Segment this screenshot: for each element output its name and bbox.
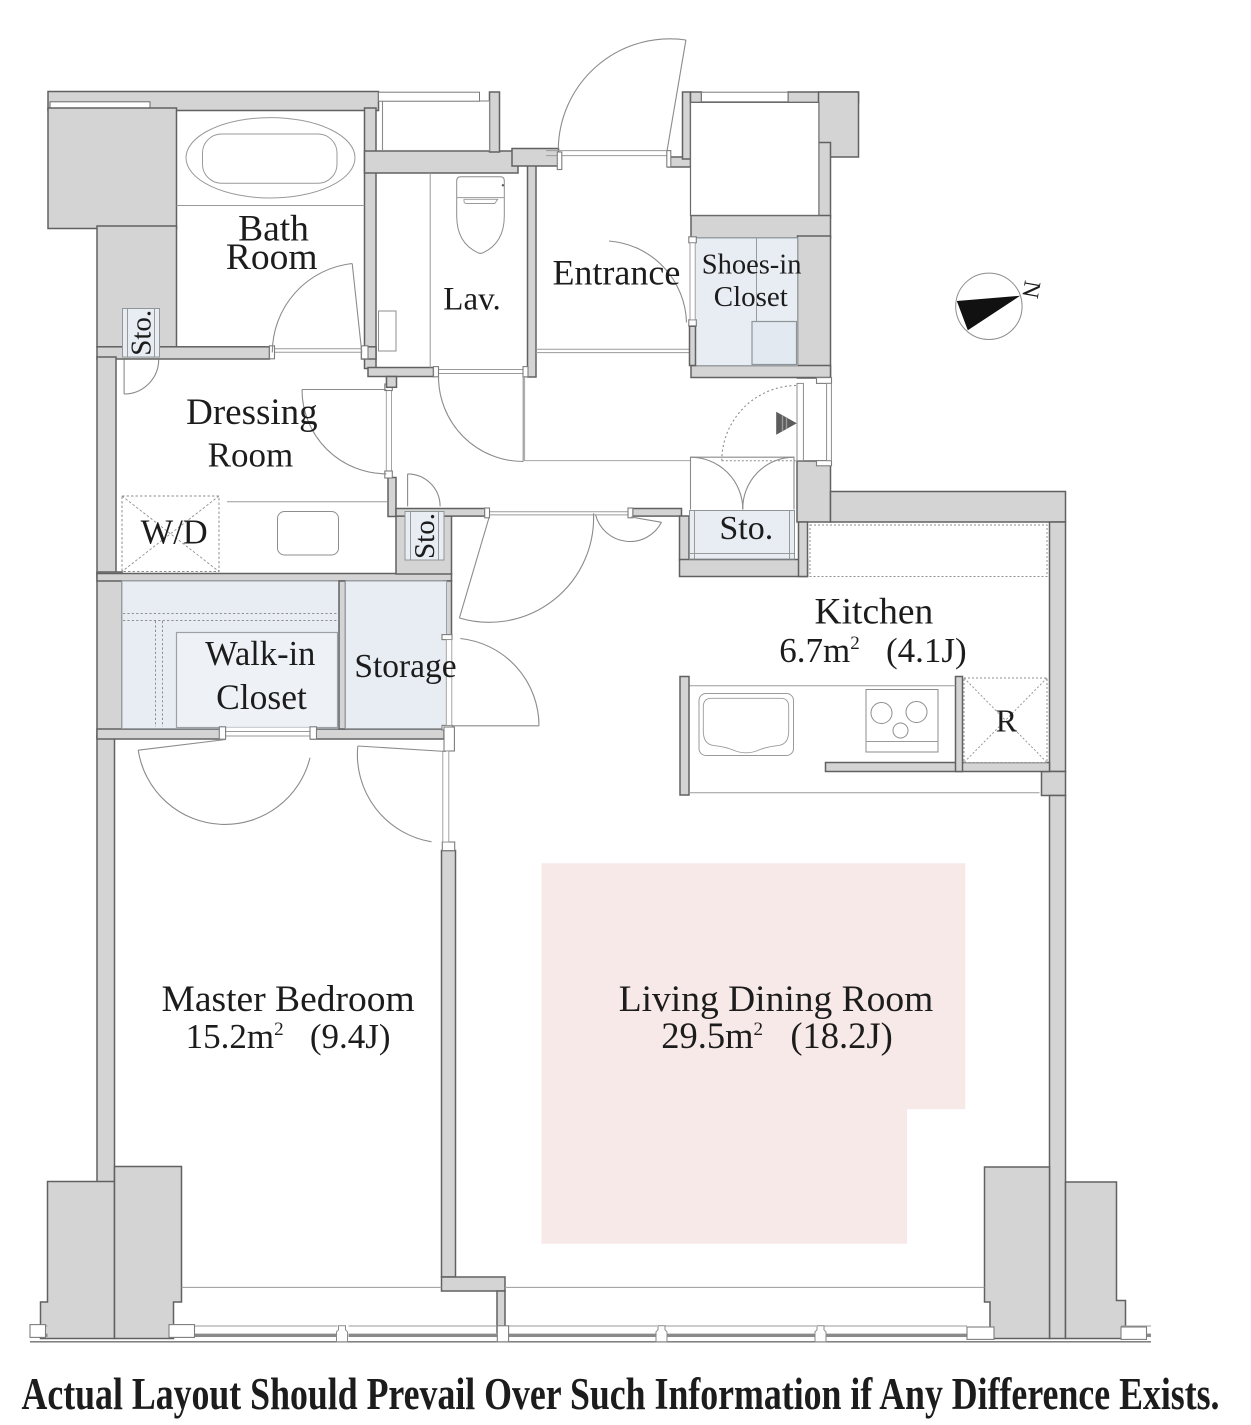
svg-text:Entrance: Entrance	[552, 252, 680, 292]
svg-text:R: R	[996, 703, 1018, 739]
svg-text:Lav.: Lav.	[443, 282, 500, 318]
svg-text:Closet: Closet	[216, 677, 307, 717]
svg-text:Actual Layout Should Prevail O: Actual Layout Should Prevail Over Such I…	[22, 1369, 1220, 1419]
svg-text:6.7m2 (4.1J): 6.7m2 (4.1J)	[779, 631, 966, 670]
svg-text:Dressing: Dressing	[186, 392, 318, 433]
svg-text:Sto.: Sto.	[719, 510, 773, 547]
svg-text:Sto.: Sto.	[409, 513, 441, 559]
svg-text:Sto.: Sto.	[126, 310, 158, 356]
svg-text:Shoes-in: Shoes-in	[702, 249, 802, 280]
svg-text:Walk-in: Walk-in	[205, 635, 315, 673]
svg-text:Room: Room	[226, 237, 318, 278]
svg-text:W/D: W/D	[141, 514, 208, 552]
svg-text:Master Bedroom: Master Bedroom	[162, 979, 415, 1020]
svg-text:15.2m2 (9.4J): 15.2m2 (9.4J)	[186, 1017, 391, 1056]
svg-text:Living Dining Room: Living Dining Room	[619, 979, 934, 1020]
svg-text:Closet: Closet	[714, 281, 788, 313]
svg-text:Kitchen: Kitchen	[815, 592, 934, 633]
svg-text:29.5m2 (18.2J): 29.5m2 (18.2J)	[661, 1015, 893, 1056]
svg-text:Storage: Storage	[354, 648, 456, 685]
svg-text:Room: Room	[208, 436, 294, 475]
